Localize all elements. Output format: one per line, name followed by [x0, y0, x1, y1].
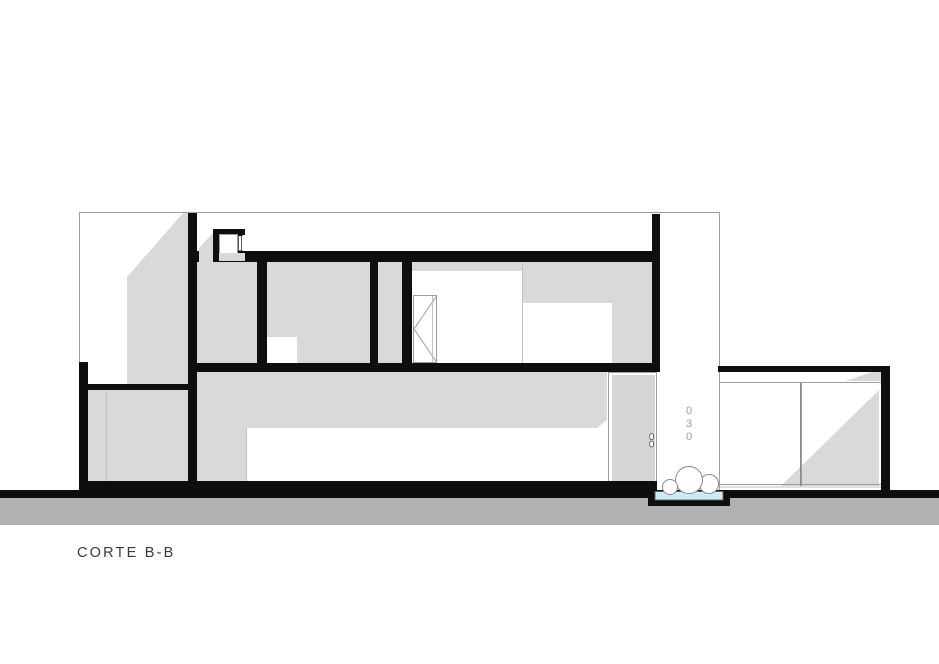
- upper-room-1-backwall: [197, 262, 257, 363]
- right-annex-wall: [881, 366, 890, 498]
- ground-floor-backwall: [246, 372, 607, 428]
- left-annex-wall: [79, 362, 88, 492]
- door-keyhole: [650, 441, 654, 447]
- floor-slab: [188, 363, 660, 372]
- skylight-pedestal: [219, 253, 245, 261]
- ground-line: [0, 490, 939, 498]
- house-number-digit-1: 0: [686, 405, 692, 417]
- skylight-glazing-top-cap: [238, 233, 243, 236]
- upper-partition-wall-a: [257, 251, 267, 372]
- upper-partition-wall-b: [370, 251, 378, 372]
- entrance-door-panel: [612, 375, 655, 485]
- upper-room-3-ceiling-band: [412, 262, 522, 271]
- upper-room-2-opening: [267, 337, 297, 363]
- ground-floor-sidewall: [197, 372, 246, 481]
- upper-partition-wall-c: [402, 251, 412, 372]
- section-drawing: 0 3 0 CORTE B-B: [0, 0, 939, 664]
- upper-room-3-backwall-upper: [522, 262, 652, 303]
- left-annex-interior: [88, 390, 188, 482]
- upper-door-leaf: [414, 296, 437, 363]
- skylight-shaft: [220, 235, 238, 256]
- glass-mullion: [800, 383, 802, 486]
- upper-room-3-backwall-right: [612, 303, 652, 363]
- ground-band: [0, 498, 939, 525]
- right-main-wall: [652, 214, 660, 372]
- section-drawing-canvas: 0 3 0 CORTE B-B: [0, 0, 939, 664]
- stone-left: [663, 480, 678, 495]
- house-number-digit-3: 0: [686, 431, 692, 443]
- drawing-title: CORTE B-B: [77, 545, 176, 561]
- left-annex-roof-slab: [79, 384, 189, 390]
- stone-large: [676, 467, 703, 494]
- house-number-digit-2: 3: [686, 418, 692, 430]
- right-annex-roof-beam: [718, 366, 889, 372]
- skylight-left-cheek: [213, 229, 219, 255]
- door-handle: [650, 434, 654, 440]
- upper-corridor-backwall: [378, 262, 402, 363]
